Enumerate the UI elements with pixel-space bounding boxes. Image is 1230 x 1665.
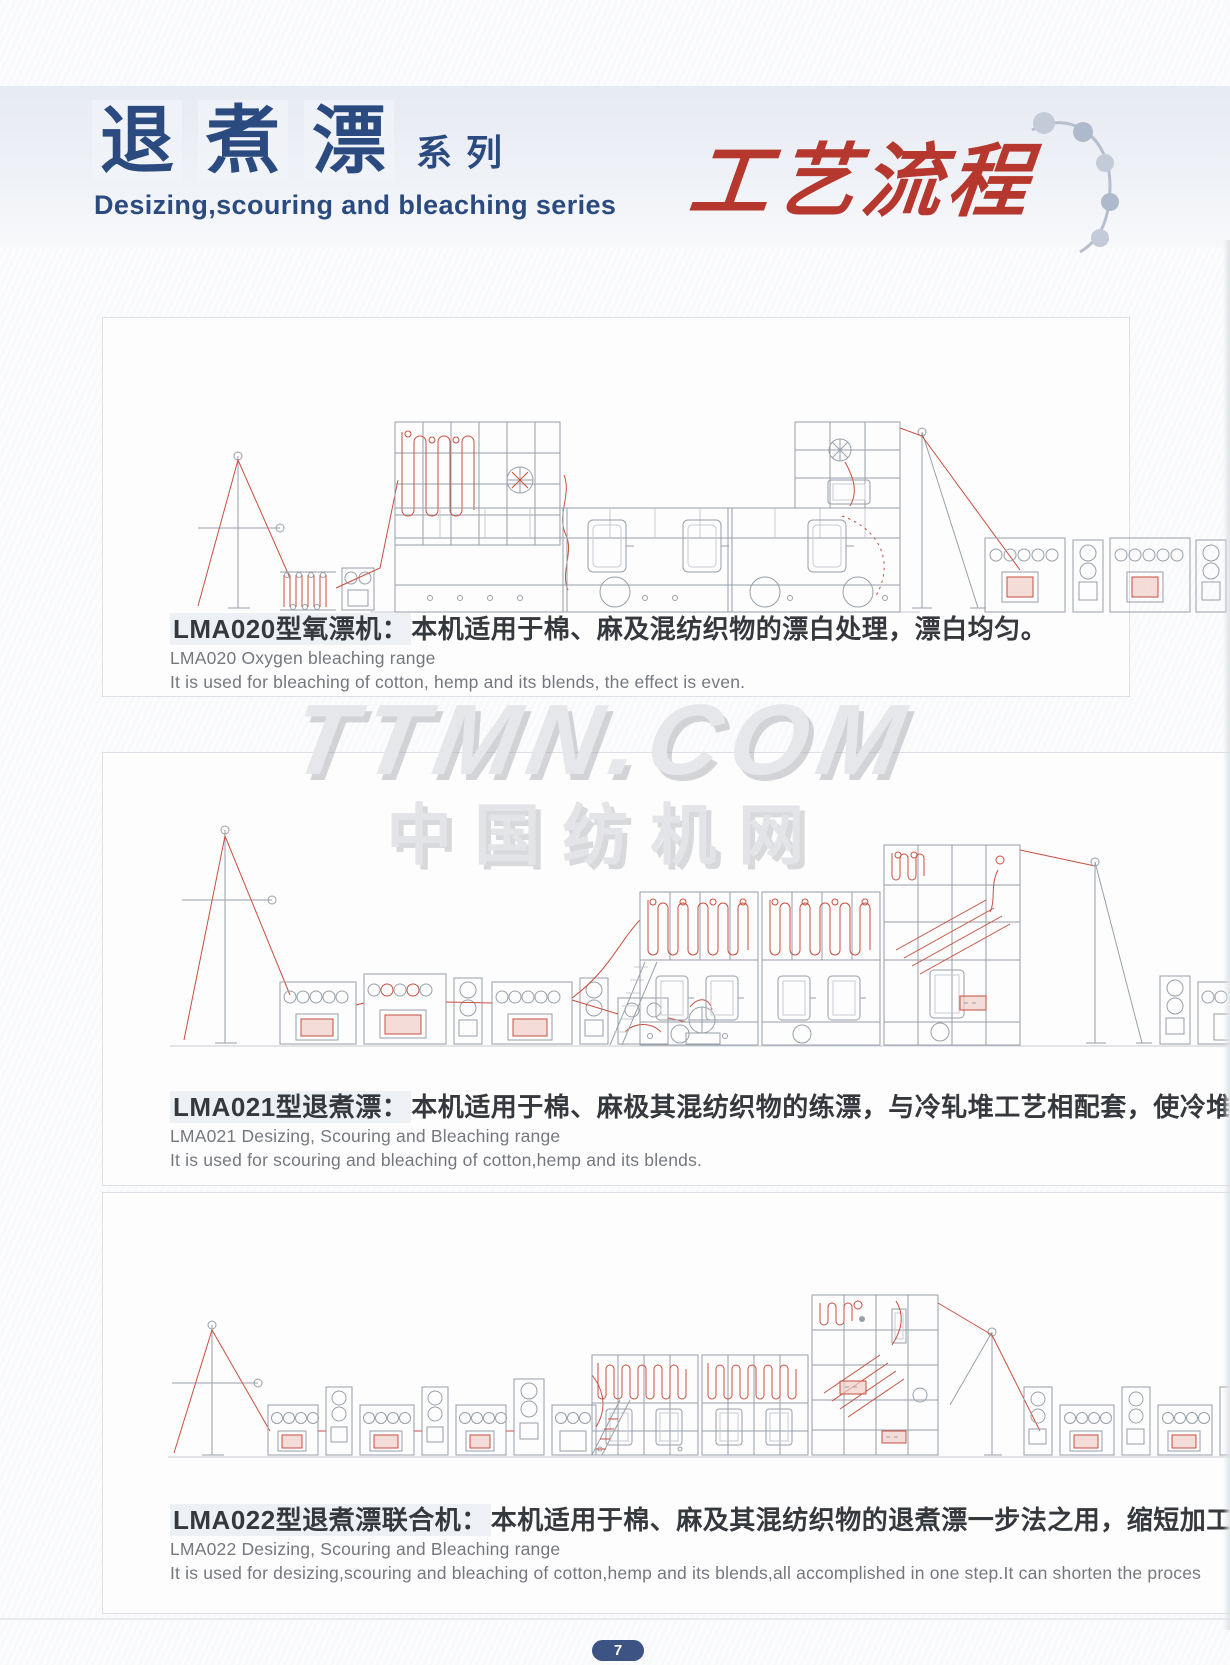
footer-divider <box>0 1618 1230 1620</box>
header-band: 退 煮 漂 系列 Desizing,scouring and bleaching… <box>0 86 1230 248</box>
caption-lma020-en-model: LMA020 Oxygen bleaching range <box>170 648 1047 669</box>
caption-lma022-en-model: LMA022 Desizing, Scouring and Bleaching … <box>170 1539 1230 1560</box>
caption-lma020-model: LMA020型氧漂机： <box>170 613 411 645</box>
caption-lma022-text: 本机适用于棉、麻及其混纺织物的退煮漂一步法之用，缩短加工 <box>491 1505 1230 1535</box>
process-flow-title: 工艺流程 <box>686 142 1038 222</box>
caption-lma021-en-model: LMA021 Desizing, Scouring and Bleaching … <box>170 1126 1230 1147</box>
page-number-badge: 7 <box>592 1640 644 1661</box>
caption-lma020-cn: LMA020型氧漂机：本机适用于棉、麻及混纺织物的漂白处理，漂白均匀。 <box>170 614 1047 645</box>
dotted-arc-decoration-icon <box>992 90 1142 260</box>
caption-lma020: LMA020型氧漂机：本机适用于棉、麻及混纺织物的漂白处理，漂白均匀。 LMA0… <box>170 614 1047 692</box>
lma020-machine-diagram <box>140 420 1230 620</box>
caption-lma020-en-desc: It is used for bleaching of cotton, hemp… <box>170 672 1047 693</box>
scan-edge-shade <box>1223 240 1230 1630</box>
lma021-machine-diagram <box>140 800 1230 1055</box>
caption-lma021-cn: LMA021型退煮漂：本机适用于棉、麻极其混纺织物的练漂，与冷轧堆工艺相配套，使… <box>170 1092 1230 1123</box>
title-char-3: 漂 <box>304 100 394 182</box>
series-title-en: Desizing,scouring and bleaching series <box>94 190 616 221</box>
lma022-machine-diagram <box>140 1235 1230 1465</box>
caption-lma021: LMA021型退煮漂：本机适用于棉、麻极其混纺织物的练漂，与冷轧堆工艺相配套，使… <box>170 1092 1230 1170</box>
catalog-page: 退 煮 漂 系列 Desizing,scouring and bleaching… <box>0 0 1230 1665</box>
caption-lma020-text: 本机适用于棉、麻及混纺织物的漂白处理，漂白均匀。 <box>411 614 1047 644</box>
caption-lma021-text: 本机适用于棉、麻极其混纺织物的练漂，与冷轧堆工艺相配套，使冷堆 <box>411 1092 1230 1122</box>
caption-lma022-model: LMA022型退煮漂联合机： <box>170 1504 491 1536</box>
series-title-cn: 退 煮 漂 系列 <box>92 100 516 182</box>
title-char-1: 退 <box>92 100 182 182</box>
page-number: 7 <box>614 1642 622 1659</box>
caption-lma022-cn: LMA022型退煮漂联合机：本机适用于棉、麻及其混纺织物的退煮漂一步法之用，缩短… <box>170 1505 1230 1536</box>
caption-lma021-model: LMA021型退煮漂： <box>170 1091 411 1123</box>
caption-lma022-en-desc: It is used for desizing,scouring and ble… <box>170 1563 1230 1584</box>
title-char-2: 煮 <box>198 100 288 182</box>
series-suffix: 系列 <box>416 124 516 176</box>
caption-lma021-en-desc: It is used for scouring and bleaching of… <box>170 1150 1230 1171</box>
caption-lma022: LMA022型退煮漂联合机：本机适用于棉、麻及其混纺织物的退煮漂一步法之用，缩短… <box>170 1505 1230 1583</box>
